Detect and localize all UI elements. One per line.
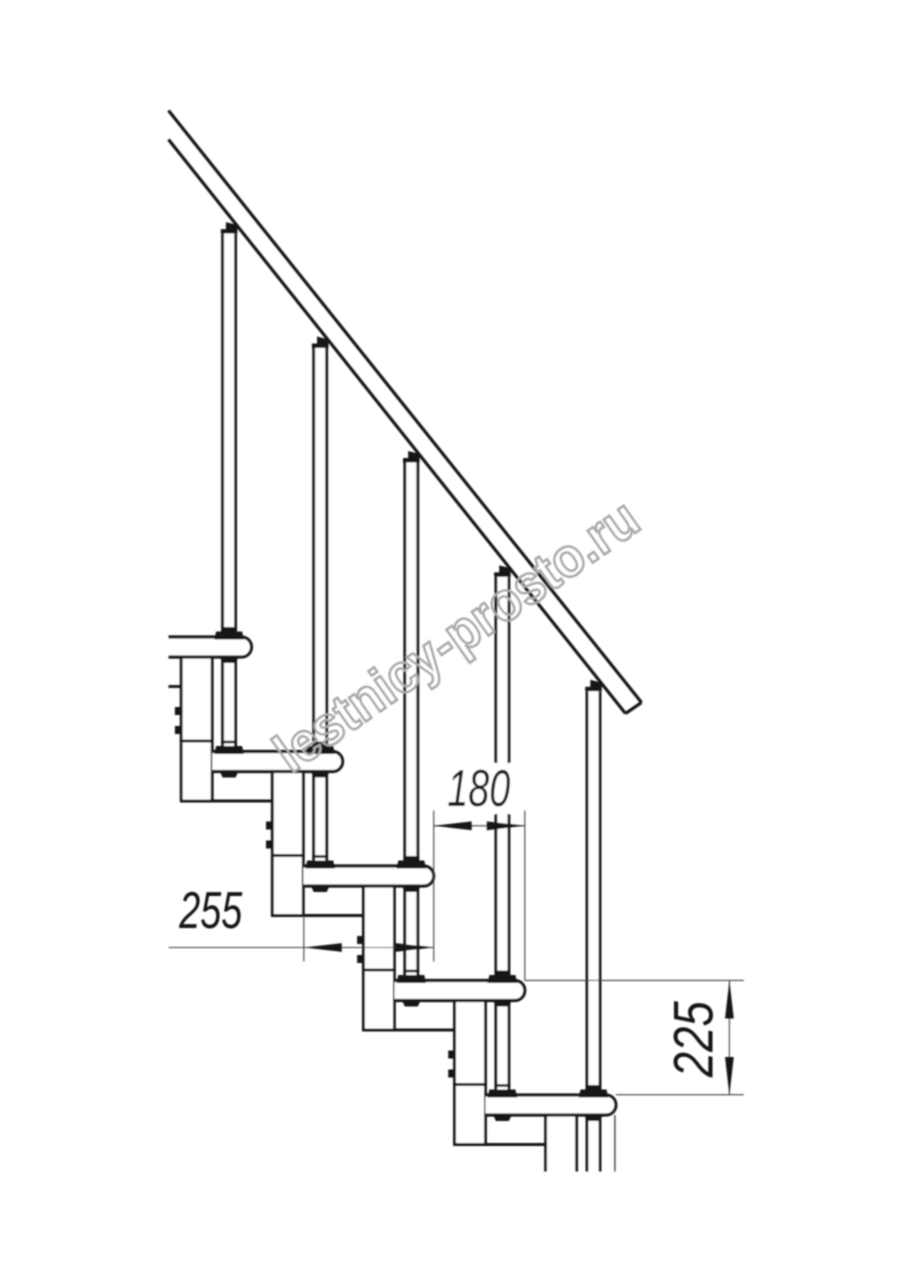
svg-text:255: 255 [179, 882, 244, 940]
svg-text:180: 180 [447, 760, 510, 818]
svg-text:225: 225 [661, 1001, 724, 1079]
